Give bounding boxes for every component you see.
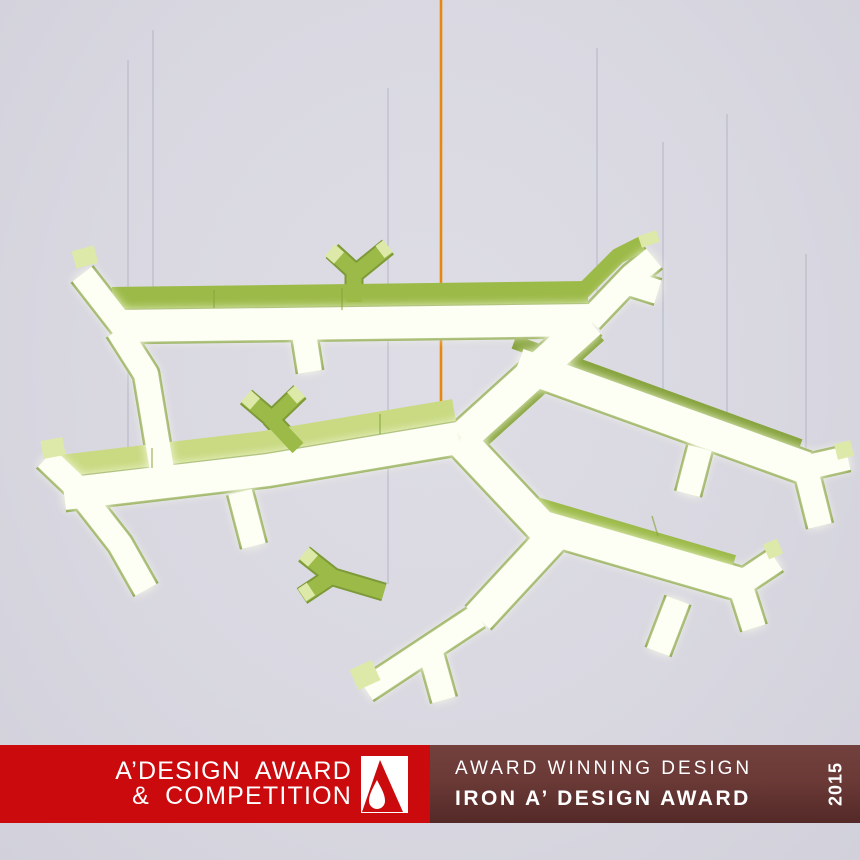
competition-title-line2: & COMPETITION bbox=[115, 784, 352, 809]
a-design-award-logo bbox=[361, 756, 408, 813]
award-winning-design-label: AWARD WINNING DESIGN bbox=[455, 758, 860, 780]
pendant-lamp-render bbox=[0, 0, 860, 745]
lamp-structure bbox=[42, 236, 852, 700]
lit-tip-cap bbox=[354, 670, 376, 680]
lit-tip-cap bbox=[640, 236, 658, 242]
competition-title-line1: A’DESIGN AWARD bbox=[115, 759, 352, 784]
a-design-award-mark-icon bbox=[361, 756, 408, 813]
award-presentation-image: A’DESIGN AWARD & COMPETITION AWARD WINNI… bbox=[0, 0, 860, 860]
banner-right-section: AWARD WINNING DESIGN IRON A’ DESIGN AWAR… bbox=[430, 745, 860, 823]
light-diffuser-faces bbox=[46, 258, 848, 700]
iron-award-label: IRON A’ DESIGN AWARD bbox=[455, 787, 860, 811]
award-year: 2015 bbox=[825, 762, 846, 806]
award-banner: A’DESIGN AWARD & COMPETITION AWARD WINNI… bbox=[0, 745, 860, 823]
competition-title: A’DESIGN AWARD & COMPETITION bbox=[115, 759, 352, 809]
banner-left-section: A’DESIGN AWARD & COMPETITION bbox=[0, 745, 430, 823]
